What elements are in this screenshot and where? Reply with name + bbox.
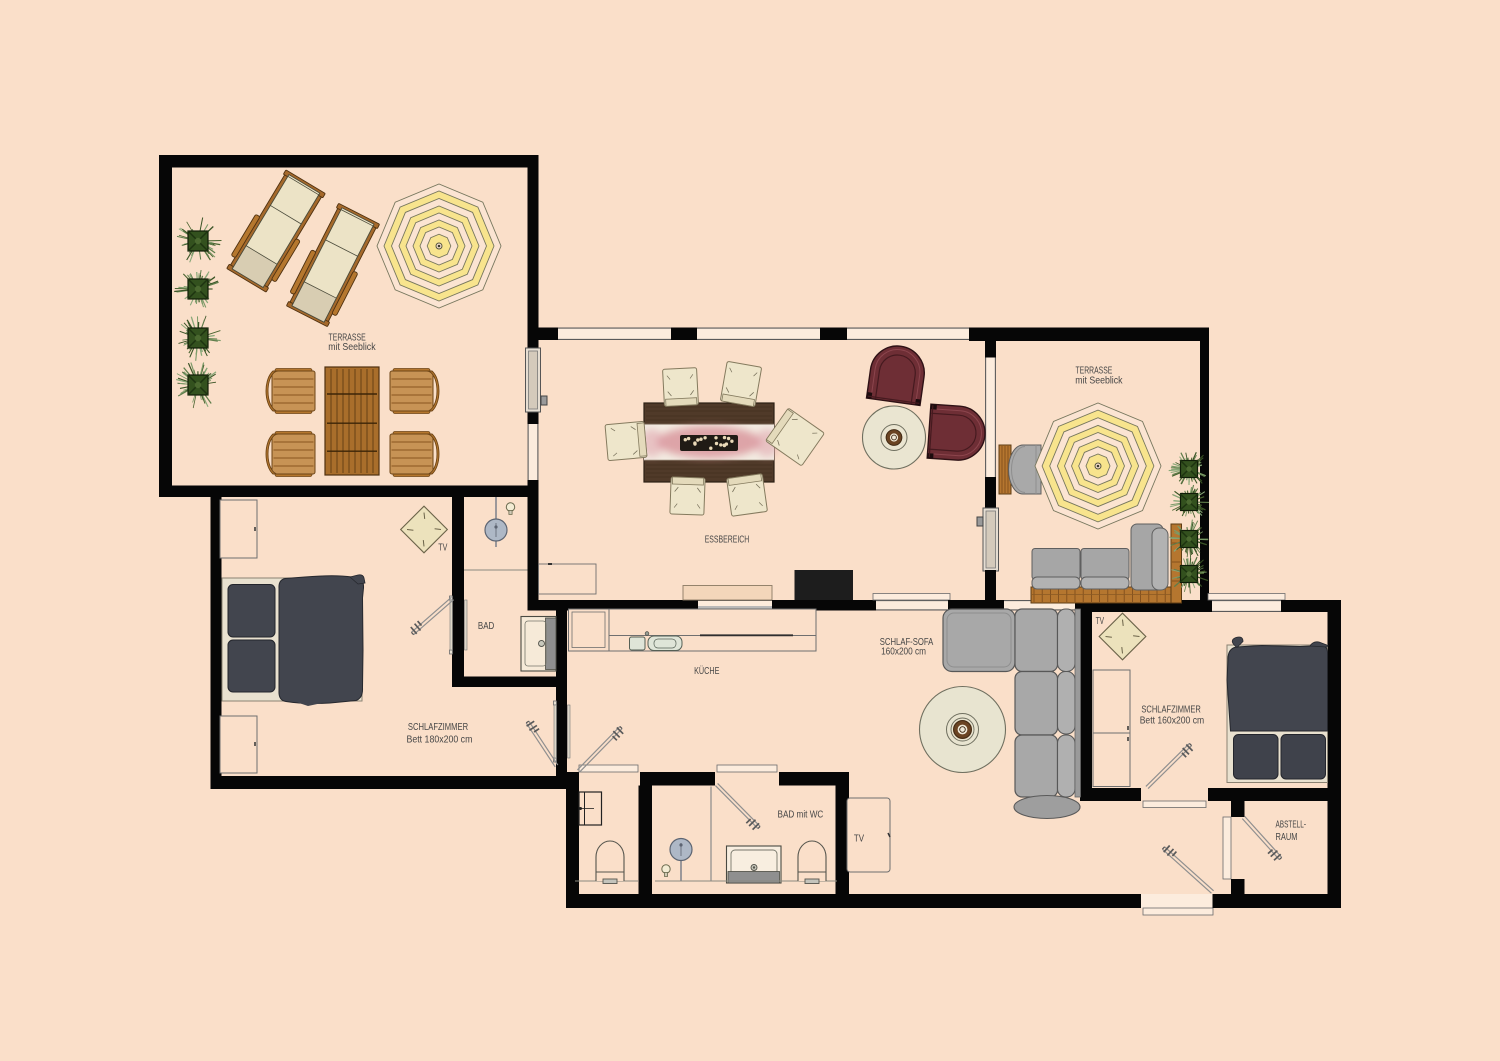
svg-text:BAD: BAD [478, 621, 494, 632]
svg-text:mit Seeblick: mit Seeblick [1075, 375, 1122, 386]
svg-text:Bett 160x200 cm: Bett 160x200 cm [1140, 715, 1205, 726]
svg-text:Bett 180x200 cm: Bett 180x200 cm [407, 735, 473, 746]
svg-text:BAD mit WC: BAD mit WC [778, 810, 824, 821]
svg-text:TV: TV [854, 833, 865, 844]
svg-text:SCHLAFZIMMER: SCHLAFZIMMER [408, 722, 468, 733]
svg-text:160x200 cm: 160x200 cm [881, 647, 926, 658]
svg-text:RAUM: RAUM [1276, 832, 1298, 843]
svg-text:mit Seeblick: mit Seeblick [328, 342, 375, 353]
svg-text:TV: TV [438, 543, 447, 554]
svg-text:SCHLAFZIMMER: SCHLAFZIMMER [1141, 704, 1200, 715]
svg-text:KÜCHE: KÜCHE [694, 666, 720, 677]
svg-text:ESSBEREICH: ESSBEREICH [705, 534, 750, 545]
svg-text:ABSTELL-: ABSTELL- [1276, 820, 1307, 831]
svg-text:TV: TV [1096, 616, 1105, 627]
